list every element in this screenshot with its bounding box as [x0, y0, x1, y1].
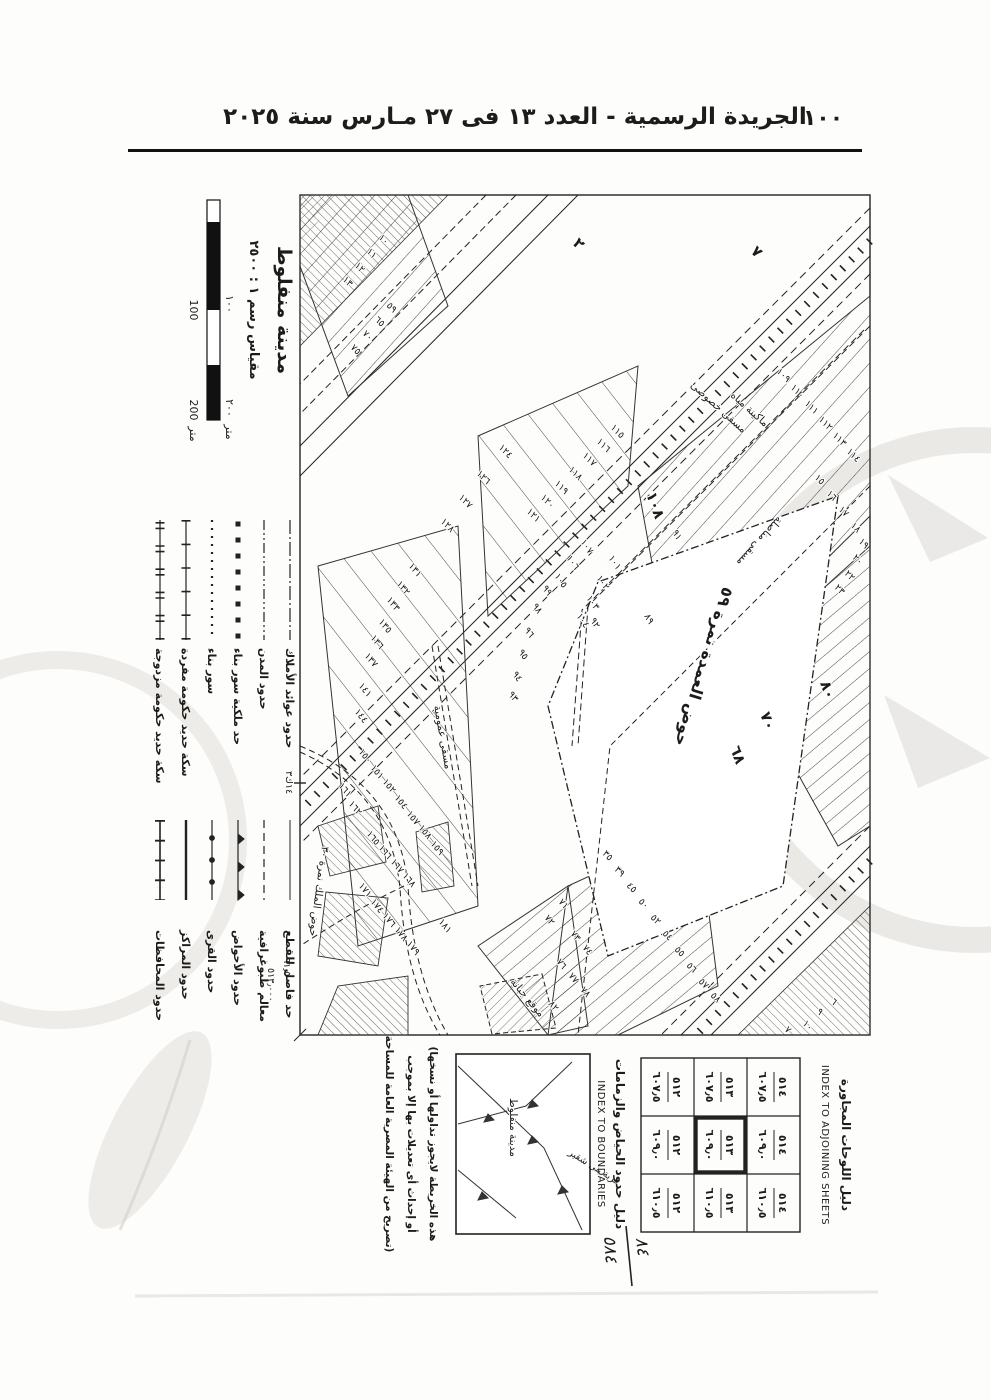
adjoining-title-english: INDEX TO ADJOINING SHEETS — [819, 1065, 830, 1225]
grid-cell: ٥١٢ ٦٠٧٫٥ — [650, 1072, 683, 1103]
scale-meters-latin: متر — [187, 425, 200, 441]
grid-cell: ٥١٤ ٦٠٩٫٠ — [756, 1130, 789, 1161]
svg-text:٥١٢: ٥١٢ — [670, 1077, 683, 1097]
svg-text:٦٠٩٫٠: ٦٠٩٫٠ — [756, 1130, 769, 1161]
disclaimer-line: تصريح من الهيئة المصرية العامة للمساحة) — [383, 1036, 395, 1253]
gazette-page: الجريدة الرسمية - العدد ١٣ فى ٢٧ مـارس س… — [0, 0, 991, 1400]
cadastral-map-svg: حوض العمدة نمرة ٥٩ حوض الملك نمرة ٣٠ موق… — [135, 186, 878, 1292]
parcel-number: ٩٦ — [522, 625, 537, 640]
disclaimer-line: أو إحداث أى تعديلات بها إلا بموجب — [405, 1055, 419, 1233]
svg-text:٦١٠٫٥: ٦١٠٫٥ — [703, 1188, 716, 1219]
disclaimer: (هذه الخريطة لايجوز تداولها أو نسخها أو … — [383, 1036, 441, 1253]
parcel-number: ٩٤ — [510, 669, 525, 684]
svg-text:٥١٣: ٥١٣ — [723, 1193, 736, 1213]
grid-cell: ٥١٤ ٦٠٧٫٥ — [756, 1072, 789, 1103]
legend-1-label: حدود عوائد الأملاك — [283, 648, 297, 748]
adjoining-title-arabic: دليل اللوحات المجاورة — [838, 1079, 853, 1211]
legend-1-label: حد ملكية سور بناء — [231, 648, 244, 745]
legend-group-1: حدود عوائد الأملاك حدود المدن حد ملكية س… — [153, 520, 297, 784]
page-number: ١٠٠ — [788, 106, 858, 131]
parcel-number: ٩٨ — [530, 601, 545, 616]
svg-text:٦١٠٫٥: ٦١٠٫٥ — [756, 1188, 769, 1219]
svg-text:٥١٤: ٥١٤ — [776, 1077, 789, 1097]
legend-2-label: حدود المحافظات — [153, 930, 166, 1021]
disclaimer-line: (هذه الخريطة لايجوز تداولها أو نسخها — [427, 1047, 441, 1242]
scale-200-latin: 200 — [187, 400, 200, 421]
grid-cell: ٥١٢ ٦٠٩٫٠ — [650, 1130, 683, 1161]
svg-text:٦٠٩٫٠: ٦٠٩٫٠ — [650, 1130, 663, 1161]
parcel-number: ٥٨ — [708, 990, 723, 1005]
svg-text:٦٠٧٫٥: ٦٠٧٫٥ — [703, 1072, 716, 1103]
svg-text:٥١٢: ٥١٢ — [670, 1135, 683, 1155]
svg-text:٥١٤: ٥١٤ — [776, 1193, 789, 1213]
parcel-number: ٧ — [747, 242, 766, 261]
parcel-number: ٩٣ — [506, 689, 521, 704]
handwritten-mark: ٨٤ ٥٨٤ — [599, 1226, 653, 1286]
legend-1-samples — [160, 520, 290, 640]
svg-text:٥١٣: ٥١٣ — [723, 1135, 736, 1155]
parcel-number: ٩٥ — [516, 647, 531, 662]
gazette-header-title: الجريدة الرسمية - العدد ١٣ فى ٢٧ مـارس س… — [170, 104, 860, 130]
scale-bar: ١٠٠ ٢٠٠ متر 100 200 متر — [187, 200, 236, 442]
svg-text:٦٠٧٫٥: ٦٠٧٫٥ — [650, 1072, 663, 1103]
handwritten-584: ٥٨٤ — [599, 1235, 621, 1265]
svg-text:٦٠٧٫٥: ٦٠٧٫٥ — [756, 1072, 769, 1103]
handwritten-84: ٨٤ — [631, 1236, 653, 1257]
parcel-number: ١٠٥ — [552, 571, 570, 590]
parcel-number: ١٢٧ — [456, 492, 475, 511]
parcel-number: ١٠٦ — [564, 553, 582, 572]
legend-1-label: حدود المدن — [257, 648, 270, 710]
legend-2-label: حدود الأحواض — [231, 930, 245, 1006]
header-rule — [128, 149, 862, 152]
svg-text:٥١٢: ٥١٢ — [670, 1193, 683, 1213]
parcel-number: ٩٩ — [540, 583, 555, 598]
parcel-number: ١٠٧ — [578, 537, 596, 556]
svg-text:٥١٣: ٥١٣ — [723, 1077, 736, 1097]
parcel-number: ٢ — [569, 234, 588, 253]
parcel-number: ١٠١ — [606, 553, 624, 572]
legend-2-label: معالم طبوغرافية — [257, 930, 270, 1022]
scale-100-arabic: ١٠٠ — [223, 295, 236, 313]
map-sheet-landscape: حوض العمدة نمرة ٥٩ حوض الملك نمرة ٣٠ موق… — [135, 186, 878, 1292]
adjoining-grid-cells: ٥١٤ ٦٠٧٫٥ ٥١٤ ٦٠٩٫٠ ٥١٤ ٦١٠٫٥ — [650, 1072, 789, 1219]
index-adjoining-sheets: دليل اللوحات المجاورة INDEX TO ADJOINING… — [641, 1058, 853, 1232]
legend-1-label: سكة حديد حكومة مزدوجة — [153, 648, 166, 784]
legend-2-label: حد فاصل للقطع — [283, 930, 296, 1019]
legend-1-label: سور بناء — [205, 648, 218, 694]
boundaries-title-english: INDEX TO BOUNDARIES — [595, 1080, 606, 1207]
legend-2-label: حدود القرى — [205, 930, 218, 993]
scale-meters-arabic: متر — [223, 423, 236, 439]
title-block: مدينة منفلوط مقياس رسم ١ : ٢٥٠٠ — [246, 241, 295, 380]
sheet-title: مدينة منفلوط — [273, 246, 295, 374]
grid-cell: ٥١٣ ٦٠٧٫٥ — [703, 1072, 736, 1103]
grid-cell-current: ٥١٣ ٦٠٩٫٠ — [703, 1130, 736, 1161]
scale-100-latin: 100 — [187, 300, 200, 321]
legend-2-label: حدود المراكز — [179, 929, 192, 1000]
km-marker: ١٤ك٣ — [283, 771, 294, 794]
svg-text:٦١٠٫٥: ٦١٠٫٥ — [650, 1188, 663, 1219]
boundaries-title-arabic: دليل حدود الحياض والزمامات — [612, 1059, 627, 1229]
scale-200-arabic: ٢٠٠ — [223, 399, 236, 417]
grid-cell: ٥١٤ ٦١٠٫٥ — [756, 1188, 789, 1219]
svg-text:٥١٤: ٥١٤ — [776, 1135, 789, 1155]
svg-text:٦٠٩٫٠: ٦٠٩٫٠ — [703, 1130, 716, 1161]
boundaries-city-label: مدينة منفلوط — [507, 1098, 519, 1157]
grid-cell: ٥١٣ ٦١٠٫٥ — [703, 1188, 736, 1219]
index-to-boundaries: دليل حدود الحياض والزمامات INDEX TO BOUN… — [456, 1054, 627, 1234]
legend-1-label: سكة حديد حكومة مفردة — [179, 648, 192, 777]
grid-cell: ٥١٢ ٦١٠٫٥ — [650, 1188, 683, 1219]
scale-label: مقياس رسم ١ : ٢٥٠٠ — [246, 241, 261, 380]
map-sheet: حوض العمدة نمرة ٥٩ حوض الملك نمرة ٣٠ موق… — [135, 186, 878, 1292]
legend-2-samples — [160, 820, 290, 900]
